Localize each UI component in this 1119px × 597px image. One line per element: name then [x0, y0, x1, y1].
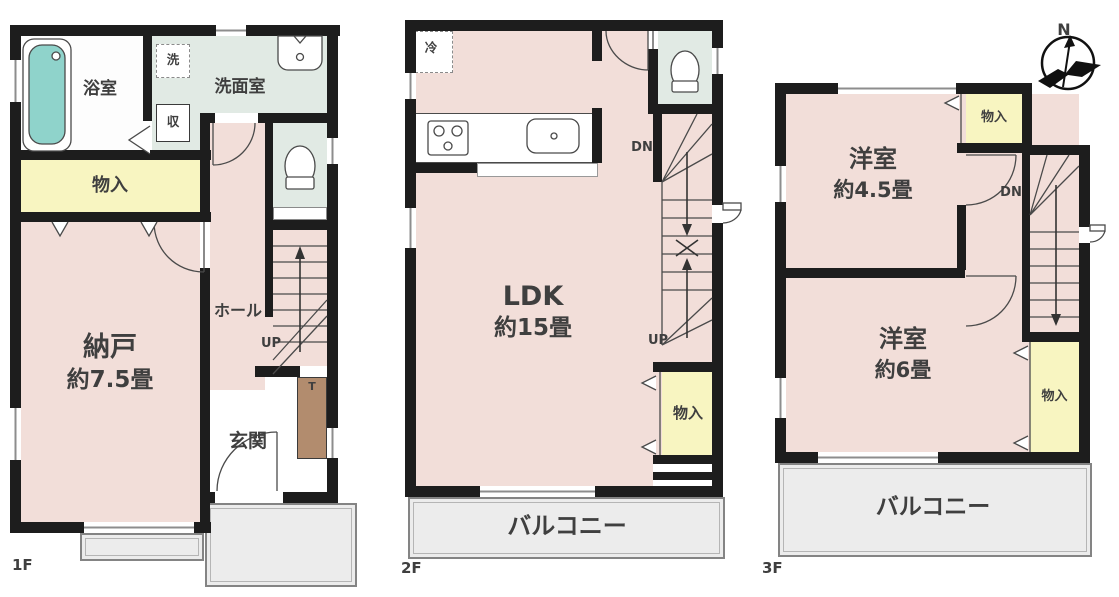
room45-label-1: 洋室: [825, 147, 921, 171]
compass-n-label: N: [1053, 22, 1075, 38]
shu-closet-label: 収: [162, 116, 184, 129]
floor-label-2f: 2F: [401, 561, 431, 576]
room6-label-2: 約6畳: [862, 360, 944, 381]
floor-label-1f: 1F: [12, 558, 42, 573]
fridge-label: 冷: [419, 42, 443, 55]
ldk-label-2: 約15畳: [463, 317, 603, 340]
dn-label-3f: DN: [996, 186, 1026, 199]
stair-arrows: [295, 152, 1061, 352]
hall-label: ホール: [206, 303, 270, 319]
room45-label-2: 約4.5畳: [812, 180, 934, 201]
ldk-label-1: LDK: [470, 283, 596, 310]
washroom-label: 洗面室: [195, 79, 285, 96]
up-label-1f: UP: [256, 337, 286, 350]
storage-top-3f-label: 物入: [968, 111, 1020, 124]
balcony-2f-label: バルコニー: [487, 514, 647, 538]
shoe-cabinet-label: T: [303, 381, 321, 392]
room6-label-1: 洋室: [855, 327, 951, 351]
storage-right-3f-label: 物入: [1031, 390, 1078, 403]
storage-1f-label: 物入: [70, 177, 150, 195]
fixtures-and-doors: [23, 31, 1105, 491]
compass-icon: [1038, 35, 1101, 89]
entrance-label: 玄関: [218, 432, 278, 451]
dn-label-2f: DN: [628, 141, 656, 154]
bathroom-label: 浴室: [60, 81, 140, 98]
up-label-2f: UP: [644, 334, 672, 347]
storage-2f-label: 物入: [662, 406, 714, 421]
floor-label-3f: 3F: [762, 561, 792, 576]
nando-label-2: 約7.5畳: [30, 369, 190, 392]
balcony-3f-label: バルコニー: [853, 496, 1013, 519]
floorplan-canvas: 浴室 洗 洗面室 収 物入 納戸 約7.5畳 ホール UP T 玄関 1F 冷 …: [0, 0, 1119, 597]
nando-label-1: 納戸: [40, 334, 180, 361]
washer-label: 洗: [162, 54, 184, 67]
